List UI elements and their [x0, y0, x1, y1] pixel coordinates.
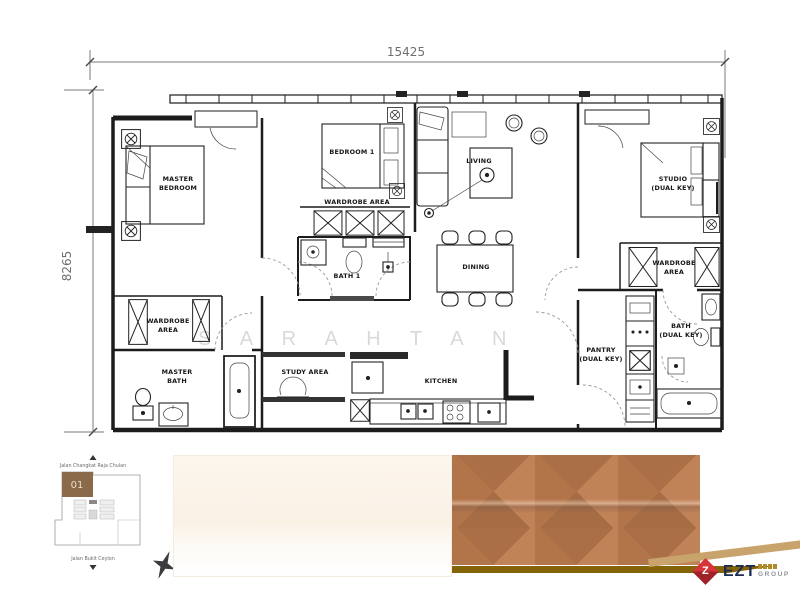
street-bottom-label: Jalan Bukit Ceylon: [70, 556, 115, 562]
label-wardrobe-left-2: AREA: [158, 326, 178, 334]
label-kitchen: KITCHEN: [425, 377, 458, 385]
label-wardrobe-mid: WARDROBE AREA: [324, 198, 390, 206]
dimension-height: 8265: [60, 251, 74, 282]
logo-diamond-letter: Z: [702, 566, 709, 577]
pantry-cabinets: [626, 296, 654, 422]
logo-brand-text: EZT: [723, 563, 756, 581]
floorplan-drawing: 15425 8265: [0, 0, 800, 460]
floorplan-page: { "dimension_labels": { "width": "15425"…: [0, 0, 800, 600]
bath-dk-fixtures: [657, 294, 721, 418]
cream-material-swatch: [173, 455, 452, 577]
study-furniture: [277, 377, 309, 397]
master-bath-fixtures: [133, 356, 255, 427]
room-labels: MASTER BEDROOM BEDROOM 1 WARDROBE AREA L…: [146, 148, 702, 385]
label-bath1: BATH 1: [334, 272, 361, 280]
copper-material-swatch: [452, 455, 700, 565]
street-top-label: Jalan Changkat Raja Chulan: [59, 463, 126, 469]
kitchen-fixtures: [350, 352, 506, 424]
label-master-bedroom: MASTER: [163, 175, 194, 183]
label-bath-dk: BATH: [671, 322, 691, 330]
developer-logo: Z EZT GROUP: [690, 554, 800, 600]
dimension-width: 15425: [387, 45, 425, 59]
south-arrow-down-icon: [90, 565, 97, 570]
label-wardrobe-left: WARDROBE: [146, 317, 189, 325]
label-studio-2: (DUAL KEY): [651, 184, 694, 192]
unit-01-label: 01: [71, 480, 84, 491]
dimension-lines: 15425 8265: [60, 45, 729, 436]
label-dining: DINING: [462, 263, 489, 271]
logo-diamond-icon: Z: [692, 558, 719, 585]
label-master-bath-2: BATH: [167, 377, 187, 385]
label-wardrobe-right: WARDROBE: [652, 259, 695, 267]
label-wardrobe-right-2: AREA: [664, 268, 684, 276]
label-pantry: PANTRY: [586, 346, 615, 354]
bedroom1-furniture: [322, 124, 404, 188]
label-master-bath: MASTER: [162, 368, 193, 376]
label-master-bedroom-2: BEDROOM: [159, 184, 197, 192]
logo-cjk-characters-icon: [758, 564, 798, 569]
logo-group-text: GROUP: [758, 571, 798, 578]
label-pantry-2: (DUAL KEY): [579, 355, 622, 363]
label-study-area: STUDY AREA: [281, 368, 328, 376]
label-bedroom1: BEDROOM 1: [329, 148, 374, 156]
label-studio: STUDIO: [659, 175, 688, 183]
label-bath-dk-2: (DUAL KEY): [659, 331, 702, 339]
label-living: LIVING: [466, 157, 492, 165]
north-arrow-up-icon: [90, 455, 97, 460]
